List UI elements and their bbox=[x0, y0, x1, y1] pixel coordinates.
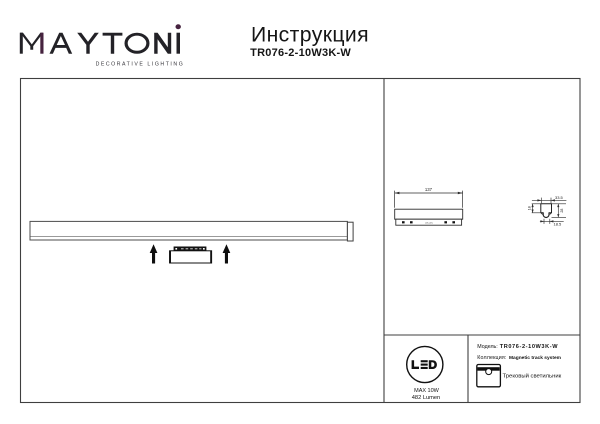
svg-text:18.5: 18.5 bbox=[554, 221, 563, 226]
svg-text:Magnetic track system: Magnetic track system bbox=[509, 355, 561, 361]
svg-text:Коллекция:: Коллекция: bbox=[477, 355, 506, 361]
svg-text:18: 18 bbox=[527, 206, 531, 210]
svg-text:482 Lumen: 482 Lumen bbox=[412, 395, 440, 401]
svg-text:Трековый светильник: Трековый светильник bbox=[503, 373, 562, 380]
svg-text:137: 137 bbox=[425, 187, 433, 192]
svg-text:MAX 10W: MAX 10W bbox=[414, 388, 440, 394]
svg-text:28: 28 bbox=[560, 209, 564, 213]
svg-text:Модель:: Модель: bbox=[477, 344, 497, 350]
svg-text:Инструкция: Инструкция bbox=[251, 24, 369, 47]
svg-text:TR076-2-10W3K-W: TR076-2-10W3K-W bbox=[250, 47, 351, 59]
svg-text:85.85: 85.85 bbox=[425, 221, 433, 225]
svg-text:TR076-2-10W3K-W: TR076-2-10W3K-W bbox=[500, 344, 559, 350]
svg-text:33.5: 33.5 bbox=[555, 195, 564, 200]
